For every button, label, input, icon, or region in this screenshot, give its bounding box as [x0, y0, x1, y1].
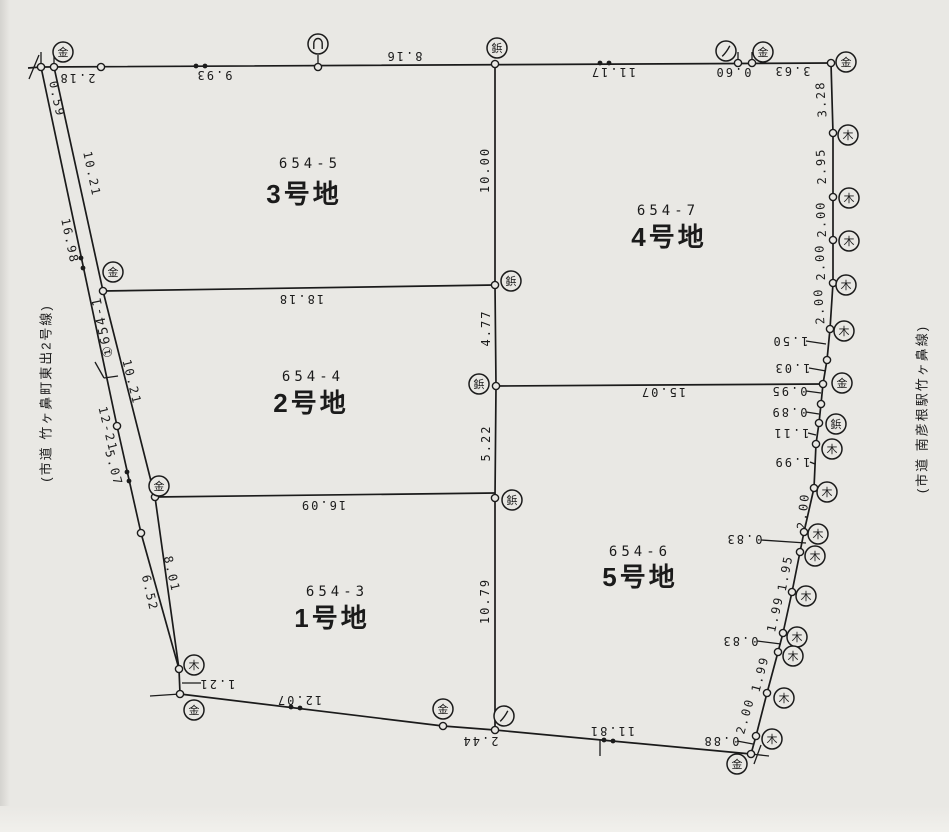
marker-glyph: 鋲 — [507, 493, 518, 507]
segment-dot — [203, 64, 208, 69]
measurement-label: 0.83 — [726, 532, 763, 546]
marker-glyph: 金 — [58, 45, 69, 59]
marker-glyph: 木 — [767, 733, 778, 746]
tick-mark — [757, 641, 781, 644]
marker-glyph: 金 — [154, 479, 165, 493]
measurement-label: 4.77 — [479, 310, 493, 347]
stake-marker-ノ — [494, 706, 514, 726]
boundary-point — [491, 726, 498, 733]
boundary-point — [50, 63, 57, 70]
center-vertical-line — [495, 64, 496, 730]
boundary-point — [829, 129, 836, 136]
measurement-label: 15.07 — [640, 385, 686, 399]
road-west-line — [41, 67, 179, 669]
stake-marker-木: 木 — [808, 524, 828, 544]
marker-glyph: 鋲 — [492, 41, 503, 55]
stake-marker-金: 金 — [149, 476, 169, 496]
marker-glyph: 鋲 — [474, 377, 485, 391]
stake-marker-木: 木 — [787, 627, 807, 647]
parcel-name: 5号地 — [602, 562, 677, 592]
stake-marker-木: 木 — [783, 646, 803, 666]
boundary-point — [491, 281, 498, 288]
marker-circle — [308, 34, 328, 54]
measurement-label: 6.52 — [139, 573, 161, 612]
boundary-point — [788, 588, 795, 595]
scanned-survey-map-page: 金金金金金金金金金木木木木木木木木木木木木木木木鋲鋲鋲鋲鋲2.189.938.1… — [0, 0, 949, 832]
boundary-point — [314, 63, 321, 70]
stake-marker-金: 金 — [103, 262, 123, 282]
stake-marker-木: 木 — [822, 439, 842, 459]
segment-dot — [611, 739, 616, 744]
stake-marker-木: 木 — [839, 188, 859, 208]
measurement-label: 1.99 — [774, 455, 811, 469]
boundary-point — [763, 689, 770, 696]
measurement-label: 2.00 — [813, 200, 829, 238]
parcel-lot-number: 654-7 — [637, 203, 699, 219]
measurement-label: 2.00 — [811, 287, 828, 325]
marker-glyph: 金 — [837, 376, 848, 390]
stake-marker-金: 金 — [53, 42, 73, 62]
boundary-point — [99, 287, 106, 294]
measurement-label: 1.99 — [764, 594, 786, 633]
measurement-label: 2.00 — [812, 243, 828, 281]
stake-marker-金: 金 — [753, 42, 773, 62]
measurement-label: 9.93 — [196, 68, 233, 82]
marker-glyph: 木 — [822, 486, 833, 499]
boundary-point — [779, 629, 786, 636]
marker-glyph: 木 — [827, 443, 838, 456]
stake-marker-木: 木 — [838, 125, 858, 145]
measurement-label: 2.18 — [59, 71, 96, 85]
measurement-label: 16.09 — [300, 498, 346, 512]
tick-mark — [761, 540, 806, 543]
boundary-point — [97, 63, 104, 70]
measurement-label: 5.22 — [479, 425, 493, 462]
boundary-point — [37, 63, 44, 70]
stake-marker-∩ — [308, 34, 328, 54]
boundary-point — [491, 60, 498, 67]
segment-dot — [598, 61, 603, 66]
lot-line-16-09 — [155, 493, 495, 497]
marker-glyph: 木 — [801, 590, 812, 603]
boundary-point — [817, 400, 824, 407]
measurement-label: 11.17 — [590, 65, 636, 79]
marker-glyph: 金 — [108, 265, 119, 279]
measurement-label: 2.00 — [794, 492, 812, 530]
tick-mark — [150, 694, 180, 696]
stake-marker-木: 木 — [762, 729, 782, 749]
parcel-name: 2号地 — [273, 388, 348, 418]
measurement-label: 0.83 — [722, 634, 759, 648]
measurement-label: 1.21 — [199, 677, 236, 691]
measurement-label: 3.63 — [774, 64, 811, 78]
measurement-label: 1.11 — [773, 426, 810, 440]
stake-marker-金: 金 — [727, 754, 747, 774]
measurement-label: 8.01 — [161, 554, 183, 593]
boundary-point — [774, 648, 781, 655]
stake-marker-鋲: 鋲 — [826, 414, 846, 434]
stake-marker-金: 金 — [433, 699, 453, 719]
boundary-point — [827, 59, 834, 66]
boundary-point — [826, 325, 833, 332]
marker-glyph: 木 — [841, 279, 852, 292]
marker-glyph: 金 — [438, 702, 449, 716]
boundary-point — [829, 236, 836, 243]
marker-glyph: 鋲 — [506, 274, 517, 288]
tick-mark — [95, 362, 104, 378]
measurement-label: 2.95 — [813, 147, 829, 185]
marker-glyph: 木 — [189, 659, 200, 672]
measurement-label: 5.07 — [102, 448, 125, 487]
stake-marker-金: 金 — [184, 700, 204, 720]
segment-dot — [194, 64, 199, 69]
parcel-name: 3号地 — [266, 179, 341, 209]
marker-glyph: 木 — [788, 650, 799, 663]
parcel-lot-number: 654-3 — [306, 584, 368, 600]
marker-glyph: 木 — [839, 325, 850, 338]
stake-marker-金: 金 — [836, 52, 856, 72]
measurement-label: 16.98 — [58, 217, 81, 265]
road-name-right: (市道 南彦根駅竹ヶ鼻線) — [915, 325, 930, 493]
segment-dot — [81, 266, 86, 271]
measurement-label: 18.18 — [278, 292, 324, 306]
road-name-left: (市道 竹ヶ鼻町東出2号線) — [39, 304, 54, 482]
measurement-label: 1.03 — [774, 361, 811, 375]
marker-glyph: 木 — [844, 192, 855, 205]
stake-marker-木: 木 — [834, 321, 854, 341]
stake-marker-木: 木 — [774, 688, 794, 708]
parcel-name: 1号地 — [294, 603, 369, 633]
stake-marker-鋲: 鋲 — [469, 374, 489, 394]
boundary-point — [819, 380, 826, 387]
measurement-label: 11.81 — [589, 724, 635, 738]
marker-glyph: 木 — [810, 550, 821, 563]
boundary-point — [815, 419, 822, 426]
boundary-point — [823, 356, 830, 363]
marker-glyph: 金 — [732, 757, 743, 771]
marker-glyph: 鋲 — [831, 417, 842, 431]
marker-glyph: 金 — [841, 55, 852, 69]
stake-marker-木: 木 — [805, 546, 825, 566]
measurement-label: 0.89 — [771, 405, 808, 419]
boundary-point — [492, 382, 499, 389]
top-boundary — [28, 63, 831, 68]
stake-marker-木: 木 — [836, 275, 856, 295]
boundary-point — [439, 722, 446, 729]
boundary-point — [137, 529, 144, 536]
marker-glyph: 木 — [843, 129, 854, 142]
measurement-label: 10.79 — [478, 578, 492, 624]
boundary-point — [812, 440, 819, 447]
measurement-label: 2.00 — [733, 696, 757, 735]
measurement-label: 8.16 — [386, 49, 423, 63]
measurement-label: 10.21 — [80, 150, 103, 198]
measurement-label: 10.21 — [119, 358, 144, 406]
boundary-point — [752, 732, 759, 739]
parcel-name: 4号地 — [631, 222, 706, 252]
measurement-label: 10.00 — [478, 147, 492, 193]
measurement-label: 2.44 — [462, 734, 499, 748]
marker-glyph: 木 — [844, 235, 855, 248]
segment-dot — [125, 470, 130, 475]
stake-marker-ノ — [716, 41, 736, 61]
measurement-label: 0.88 — [703, 734, 740, 748]
marker-glyph: 木 — [813, 528, 824, 541]
boundary-point — [176, 690, 183, 697]
marker-glyph: 金 — [758, 45, 769, 59]
boundary-point — [175, 665, 182, 672]
boundary-point — [747, 750, 754, 757]
stake-marker-鋲: 鋲 — [487, 38, 507, 58]
marker-glyph: 金 — [189, 703, 200, 717]
stake-marker-木: 木 — [796, 586, 816, 606]
stake-marker-鋲: 鋲 — [501, 271, 521, 291]
survey-map: 金金金金金金金金金木木木木木木木木木木木木木木木鋲鋲鋲鋲鋲2.189.938.1… — [0, 0, 949, 832]
tick-mark — [809, 368, 826, 371]
west-boundary-road-east-line — [54, 67, 180, 694]
stake-marker-木: 木 — [839, 231, 859, 251]
parcel-lot-number: 654-6 — [609, 544, 671, 560]
measurement-label: 0.60 — [715, 65, 752, 79]
parcel-lot-number: 654-5 — [279, 156, 341, 172]
marker-glyph: 木 — [792, 631, 803, 644]
boundary-point — [829, 193, 836, 200]
measurement-label: 3.28 — [813, 80, 830, 118]
lot-line-18-18 — [103, 285, 495, 291]
stake-marker-木: 木 — [817, 482, 837, 502]
segment-dot — [607, 61, 612, 66]
marker-glyph: 木 — [779, 692, 790, 705]
stake-marker-鋲: 鋲 — [502, 490, 522, 510]
boundary-point — [491, 494, 498, 501]
parcel-lot-number: 654-4 — [282, 369, 344, 385]
stake-marker-木: 木 — [184, 655, 204, 675]
stake-marker-金: 金 — [832, 373, 852, 393]
segment-dot — [127, 479, 132, 484]
measurement-label: 12.07 — [276, 693, 322, 707]
measurement-label: 0.95 — [771, 384, 808, 398]
measurement-label: 1.50 — [772, 334, 809, 348]
boundary-point — [796, 548, 803, 555]
